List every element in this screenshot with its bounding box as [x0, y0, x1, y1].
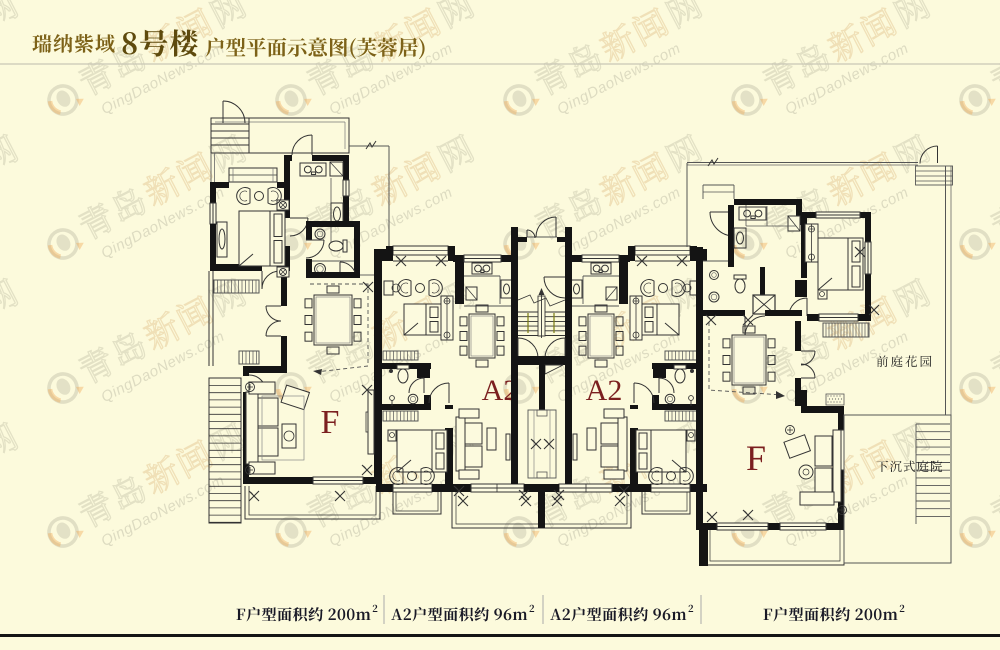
svg-text:A2: A2 — [586, 374, 623, 407]
svg-text:F: F — [321, 404, 340, 441]
svg-text:F: F — [746, 438, 766, 478]
